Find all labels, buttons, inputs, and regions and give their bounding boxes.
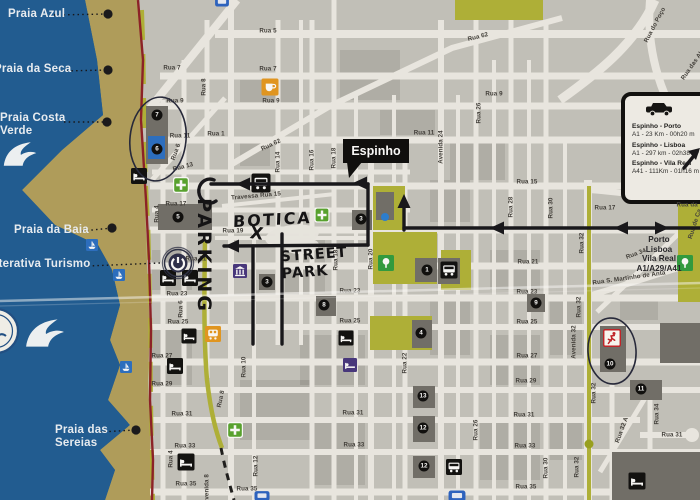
handwritten-parking: PARKING [193, 198, 215, 314]
map-marker-5: 5 [173, 212, 184, 223]
map-marker-3: 3 [356, 214, 367, 225]
beach-label-line: Praia da Seca [0, 63, 71, 76]
street-label: Rua 28 [508, 197, 515, 218]
runner-icon [603, 329, 621, 347]
street-label: Rua 7 [163, 65, 180, 72]
route-name: Espinho - Vila Real [632, 160, 700, 168]
street-label: Avenida 8 [204, 474, 211, 500]
street-label: Rua 35 [176, 481, 197, 488]
street-label: Rua 23 [167, 291, 188, 298]
street-label: Rua 27 [152, 353, 173, 360]
beach-label: Praia Azul [8, 8, 65, 21]
street-label: Rua 30 [548, 198, 555, 219]
street-label: Rua 23 [340, 288, 361, 295]
highway-sign-line: Porto [628, 235, 690, 245]
beach-label: Praia da Seca [0, 63, 71, 76]
map-marker-12: 12 [419, 461, 430, 472]
street-label: Rua 29 [152, 381, 173, 388]
street-label: Rua 27 [517, 353, 538, 360]
car-icon [640, 100, 678, 116]
street-label: Rua 34 [654, 404, 661, 425]
map-marker-8: 8 [319, 300, 330, 311]
beach-label: Interativa Turismo [0, 258, 90, 271]
map-marker-9: 9 [531, 298, 542, 309]
street-label: Rua 25 [168, 319, 189, 326]
pharmacy-icon [227, 422, 243, 438]
street-label: Rua 26 [476, 103, 483, 124]
street-label: Rua 15 [517, 179, 538, 186]
street-label: Rua 29 [516, 378, 537, 385]
hotel-icon [131, 168, 147, 184]
beach-label: Praia da Baia [14, 224, 89, 237]
street-label: Rua 14 [275, 152, 282, 173]
street-label: Rua 7 [259, 66, 276, 73]
hostel-icon [343, 358, 357, 372]
street-label: Rua 4 [168, 450, 175, 467]
map-marker-12: 12 [418, 423, 429, 434]
beach-label-line: Interativa Turismo [0, 258, 90, 271]
route-detail: A41 - 111Km - 01h16 m [632, 168, 700, 176]
hotel-icon [182, 329, 197, 344]
tree-icon [378, 255, 394, 271]
route-name: Espinho - Porto [632, 123, 700, 131]
route-detail: A1 - 23 Km - 00h20 m [632, 131, 700, 139]
route-name: Espinho - Lisboa [632, 142, 700, 150]
bus-icon [252, 174, 271, 193]
beach-label: Praia dasSereias [55, 424, 108, 449]
route-detail: A1 - 297 km - 02h38 [632, 150, 700, 158]
wave-icon [24, 317, 66, 349]
street-label: Rua 21 [518, 259, 539, 266]
street-label: Rua 22 [402, 353, 409, 374]
boat-icon [86, 239, 98, 251]
bus-icon [446, 459, 462, 475]
street-label: Avenida 32 [571, 325, 578, 358]
street-label: Rua 33 [344, 442, 365, 449]
library-icon [233, 264, 247, 278]
street-label: Rua 9 [262, 98, 279, 105]
cafe-icon [262, 79, 279, 96]
street-label: Rua 32 [576, 297, 583, 318]
street-label: Rua 26 [473, 420, 480, 441]
street-label: Rua 17 [166, 201, 187, 208]
bus-icon [441, 262, 458, 279]
logo-icon [0, 307, 20, 355]
street-label: Rua 10 [241, 357, 248, 378]
map-marker-3: 3 [262, 277, 273, 288]
street-label: Rua 31 [172, 411, 193, 418]
wave-icon [2, 141, 38, 168]
street-label: Rua 25 [517, 319, 538, 326]
street-label: Rua 33 [175, 443, 196, 450]
street-label: Rua 6 [178, 300, 185, 317]
map-marker-11: 11 [636, 384, 647, 395]
pharmacy-icon [173, 177, 189, 193]
street-label: Rua 11 [170, 133, 191, 140]
street-label: Rua 8 [201, 78, 208, 95]
power-icon [161, 246, 195, 280]
street-label: Rua 32 [591, 383, 598, 404]
street-label: Avenida 24 [438, 130, 445, 163]
street-label: Rua 1 [207, 131, 224, 138]
boat-icon [120, 361, 132, 373]
street-label: Rua 11 [414, 130, 435, 137]
beach-label-line: Praia da Baia [14, 224, 89, 237]
map-marker-7: 7 [152, 110, 163, 121]
hotel-icon [339, 331, 354, 346]
street-label: Rua 9 [166, 98, 183, 105]
street-label: Rua 9 [485, 91, 502, 98]
map-marker-1: 1 [422, 265, 433, 276]
map-marker-13: 13 [418, 391, 429, 402]
street-label: Rua 20 [368, 249, 375, 270]
beach-label: Praia CostaVerde [0, 112, 65, 137]
street-label: Rua 31 [662, 432, 683, 439]
street-label: Rua 23 [517, 289, 538, 296]
driving-distances-box: Espinho - Porto A1 - 23 Km - 00h20 m Esp… [621, 92, 700, 204]
street-label: Rua 32 [579, 233, 586, 254]
street-label: Rua 12 [253, 456, 260, 477]
map-marker-4: 4 [416, 328, 427, 339]
street-label: Rua 35 [516, 484, 537, 491]
street-label: Rua 5 [259, 28, 276, 35]
handwritten-street-park: STREET PARK [280, 245, 349, 284]
hotel-icon [629, 473, 646, 490]
street-label: Rua 25 [340, 318, 361, 325]
handwritten-x-mark: X [249, 223, 265, 245]
street-label: Rua 16 [309, 150, 316, 171]
hotel-icon [178, 454, 195, 471]
street-label: Rua 32 [574, 457, 581, 478]
street-label: Rua 31 [514, 412, 535, 419]
street-label: Rua 33 [515, 443, 536, 450]
espinho-paper-map-photo: Praia AzulPraia da SecaPraia CostaVerdeP… [0, 0, 700, 500]
street-label: Rua 18 [331, 148, 338, 169]
beach-label-line: Praia das [55, 424, 108, 437]
bluecut-icon [449, 491, 466, 500]
train-icon [205, 326, 221, 342]
street-label: Rua 31 [343, 410, 364, 417]
map-marker-10: 10 [605, 359, 616, 370]
beach-label-line: Praia Azul [8, 8, 65, 21]
beach-label-line: Sereias [55, 437, 108, 450]
espinho-map-flag: Espinho [343, 139, 409, 163]
street-label: Rua 30 [543, 458, 550, 479]
map-marker-6: 6 [152, 144, 163, 155]
hotel-icon [167, 358, 183, 374]
pharmacy-icon [315, 208, 330, 223]
boat-icon [113, 269, 125, 281]
street-label: Rua 17 [595, 205, 616, 212]
street-label: Rua 35 [237, 486, 258, 493]
beach-label-line: Praia Costa [0, 112, 65, 125]
street-label: Rua 4 [154, 205, 161, 222]
beach-label-line: Verde [0, 125, 65, 138]
bluecut-icon [215, 0, 229, 7]
